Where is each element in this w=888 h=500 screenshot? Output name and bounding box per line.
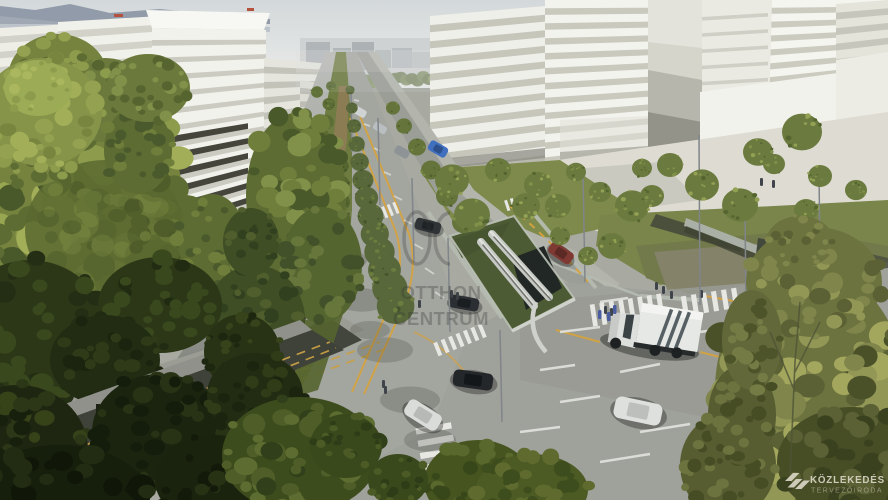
svg-text:OTTHON: OTTHON bbox=[400, 282, 481, 303]
svg-text:KÖZLEKEDÉS: KÖZLEKEDÉS bbox=[810, 474, 885, 486]
svg-text:CENTRUM: CENTRUM bbox=[393, 308, 489, 329]
svg-text:TERVEZŐIRODA: TERVEZŐIRODA bbox=[811, 486, 883, 495]
